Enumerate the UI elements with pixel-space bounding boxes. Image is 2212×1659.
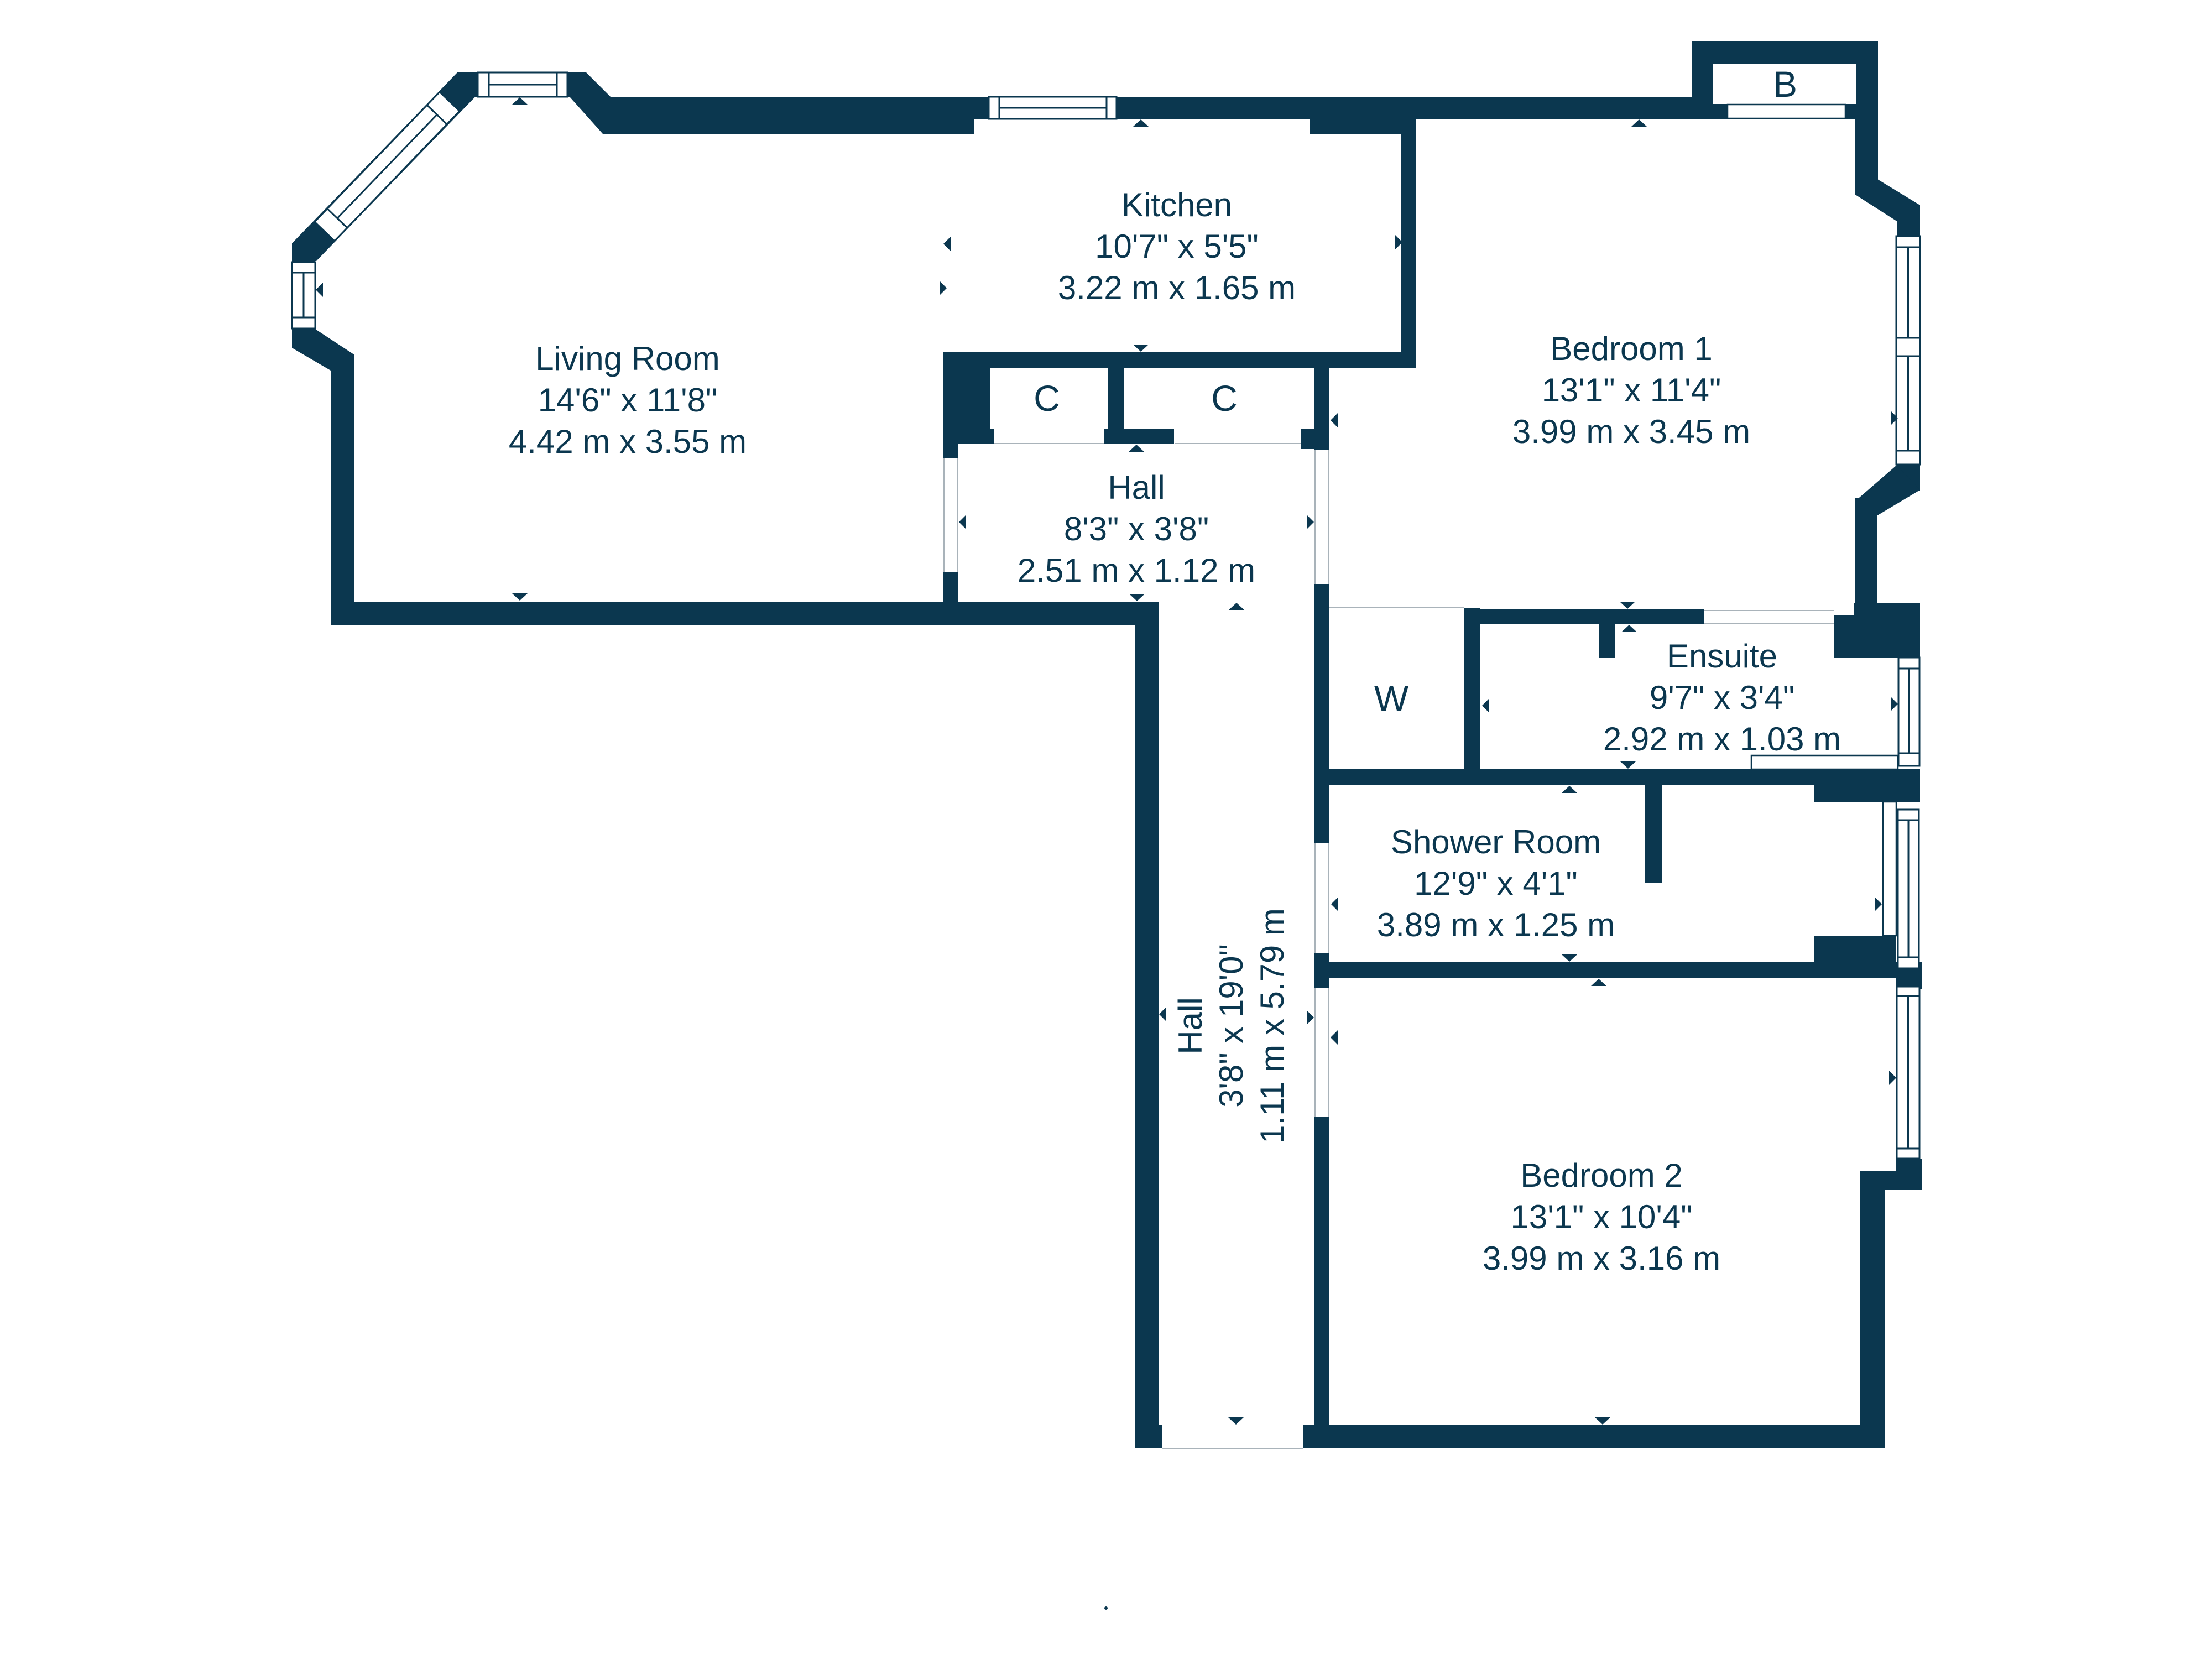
svg-text:4.42 m x 3.55 m: 4.42 m x 3.55 m [509, 423, 747, 460]
svg-text:9'7" x 3'4": 9'7" x 3'4" [1650, 679, 1794, 716]
svg-text:13'1" x 11'4": 13'1" x 11'4" [1542, 372, 1721, 409]
svg-text:8'3" x 3'8": 8'3" x 3'8" [1064, 510, 1209, 547]
svg-text:13'1" x 10'4": 13'1" x 10'4" [1510, 1198, 1692, 1235]
svg-text:3'8" x 19'0": 3'8" x 19'0" [1213, 944, 1250, 1108]
svg-text:10'7" x 5'5": 10'7" x 5'5" [1095, 228, 1259, 265]
svg-text:Living Room: Living Room [535, 340, 720, 377]
svg-text:Bedroom 1: Bedroom 1 [1550, 330, 1713, 367]
svg-text:2.51 m x 1.12 m: 2.51 m x 1.12 m [1018, 552, 1255, 589]
svg-text:12'9" x 4'1": 12'9" x 4'1" [1414, 865, 1578, 902]
svg-text:W: W [1374, 678, 1409, 719]
svg-text:Shower Room: Shower Room [1391, 823, 1601, 860]
svg-text:C: C [1211, 378, 1238, 419]
svg-text:Hall: Hall [1108, 469, 1165, 506]
svg-text:1.11 m x 5.79 m: 1.11 m x 5.79 m [1254, 908, 1291, 1144]
svg-text:2.92 m x 1.03 m: 2.92 m x 1.03 m [1603, 721, 1841, 758]
svg-text:Ensuite: Ensuite [1667, 638, 1777, 675]
svg-text:14'6" x 11'8": 14'6" x 11'8" [538, 382, 718, 419]
svg-text:3.22 m x 1.65 m: 3.22 m x 1.65 m [1058, 269, 1296, 306]
svg-text:Kitchen: Kitchen [1121, 186, 1232, 223]
svg-text:C: C [1034, 378, 1060, 419]
svg-text:B: B [1773, 64, 1797, 105]
svg-text:3.99 m x 3.45 m: 3.99 m x 3.45 m [1512, 413, 1750, 450]
svg-text:Bedroom 2: Bedroom 2 [1520, 1157, 1683, 1194]
svg-text:3.99 m x 3.16 m: 3.99 m x 3.16 m [1483, 1240, 1720, 1277]
svg-text:Hall: Hall [1172, 997, 1209, 1054]
svg-text:3.89 m x 1.25 m: 3.89 m x 1.25 m [1377, 906, 1615, 943]
